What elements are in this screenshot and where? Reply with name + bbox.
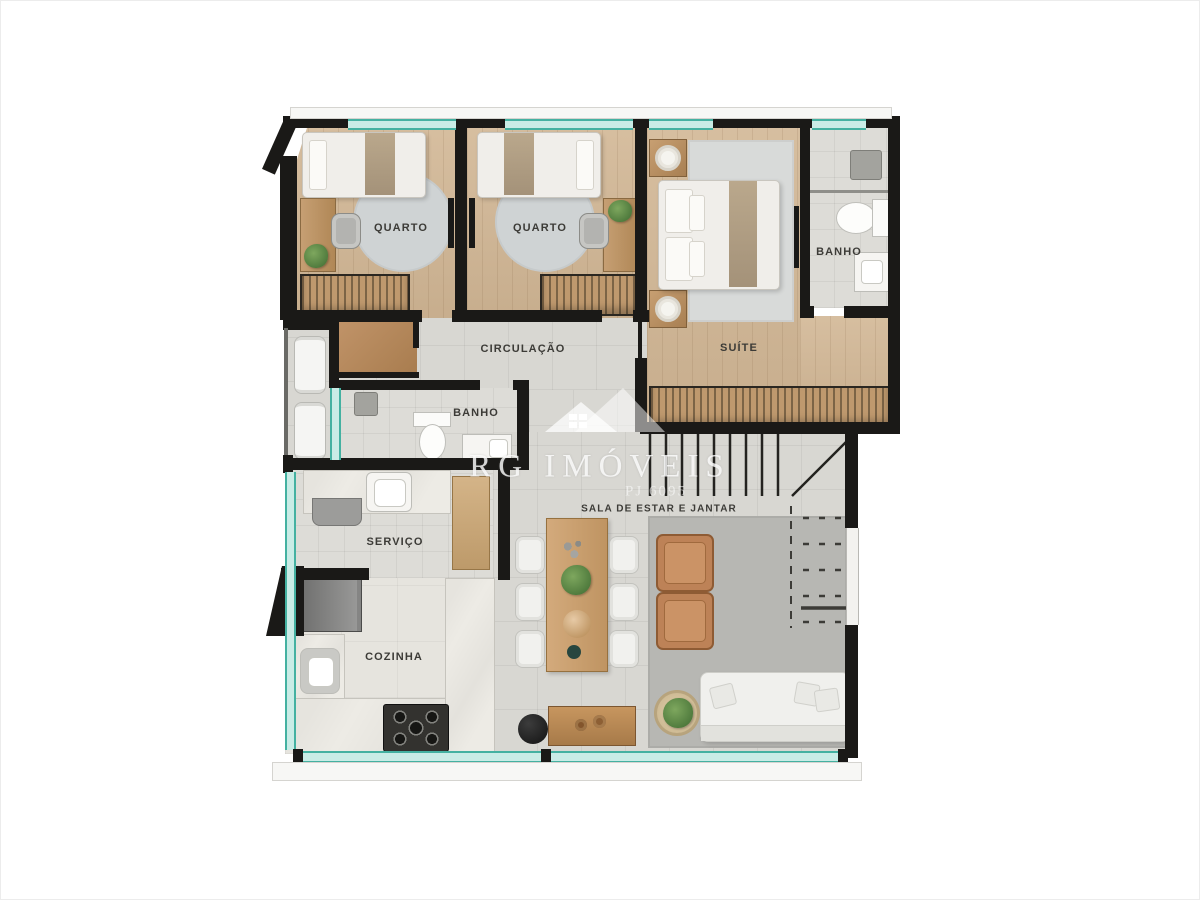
watermark-brand: RG IMÓVEIS — [469, 449, 731, 486]
toilet-tank — [872, 199, 889, 237]
basin — [861, 260, 883, 284]
pillow — [689, 241, 705, 277]
window-opening — [846, 528, 859, 625]
fridge — [298, 576, 362, 632]
dining-chair — [609, 630, 639, 668]
kitchen-sink — [300, 648, 340, 694]
bed-quarto-2 — [477, 132, 601, 198]
watermark-registration: PJ 6095 — [625, 484, 687, 501]
floor-plan-canvas: QUARTO QUARTO BANHO SUÍTE CIRCULAÇÃO BAN… — [0, 0, 1200, 900]
sofa — [700, 672, 850, 742]
tv-quarto-2 — [469, 198, 475, 248]
tv-suite — [794, 206, 799, 268]
wall — [452, 310, 602, 322]
wall — [283, 455, 293, 473]
ac-unit-1 — [294, 336, 326, 394]
nightstand-suite-2 — [649, 290, 687, 328]
counter-kitchen-peninsula — [445, 578, 495, 754]
basin — [308, 657, 334, 687]
wall — [280, 156, 297, 320]
wall — [888, 116, 900, 434]
floor-closet — [339, 322, 417, 376]
shower-head-icon — [354, 392, 378, 416]
dining-chair — [515, 630, 545, 668]
balcony-ledge — [272, 762, 862, 781]
desk-chair — [579, 213, 609, 249]
wall — [635, 126, 647, 322]
servico-door-panel — [452, 476, 490, 570]
window-post — [293, 749, 303, 762]
wall — [332, 380, 480, 390]
pillow — [689, 195, 705, 231]
shower-glass — [810, 190, 888, 193]
cup — [567, 645, 581, 659]
washer — [312, 498, 362, 526]
sofa-pillow — [709, 682, 738, 709]
blanket-stripe — [504, 133, 534, 195]
dining-chair — [515, 583, 545, 621]
room-label-circulacao: CIRCULAÇÃO — [481, 343, 566, 355]
table-decor — [560, 536, 586, 562]
door-leaf — [638, 320, 642, 358]
tv-quarto-1 — [448, 198, 454, 248]
wall — [845, 434, 858, 528]
room-label-banho-suite: BANHO — [816, 246, 862, 258]
window-post — [541, 749, 551, 762]
vase — [593, 715, 606, 728]
room-label-quarto-2: QUARTO — [513, 222, 567, 234]
bed-quarto-1 — [302, 132, 426, 198]
room-label-banho-social: BANHO — [453, 407, 499, 419]
wall — [845, 625, 858, 758]
closet-wall — [413, 322, 419, 348]
room-label-sala: SALA DE ESTAR E JANTAR — [581, 504, 737, 515]
sideboard — [548, 706, 636, 746]
window-glass — [330, 388, 341, 460]
wall — [800, 126, 810, 316]
ledge-parapet — [284, 328, 288, 460]
plant-quarto-2 — [608, 200, 632, 222]
wall — [498, 470, 510, 580]
lamp — [655, 296, 681, 322]
window-glass — [812, 119, 866, 130]
pillow — [576, 140, 594, 190]
house-logo-icon — [545, 382, 665, 438]
window-post — [838, 749, 848, 762]
table-plant — [561, 565, 591, 595]
pouf-plant — [663, 698, 693, 728]
window-glass — [649, 119, 713, 130]
room-label-cozinha: COZINHA — [365, 651, 423, 663]
room-label-servico: SERVIÇO — [366, 536, 423, 548]
desk-chair — [331, 213, 361, 249]
room-label-quarto-1: QUARTO — [374, 222, 428, 234]
closet-wall — [333, 372, 419, 378]
window-glass — [505, 119, 633, 130]
plant-quarto-1 — [304, 244, 328, 268]
laundry-sink — [366, 472, 412, 512]
blanket-stripe — [365, 133, 395, 195]
side-table-black — [518, 714, 548, 744]
blanket-stripe — [729, 181, 757, 287]
vase — [575, 719, 587, 731]
lamp — [655, 145, 681, 171]
closet-wall — [333, 322, 339, 378]
bed-suite — [658, 180, 780, 290]
wall — [640, 422, 900, 434]
toilet-social — [419, 424, 446, 460]
dining-chair — [609, 536, 639, 574]
toilet-suite — [836, 202, 876, 234]
window-glass — [285, 472, 296, 750]
cooktop — [383, 704, 449, 752]
nightstand-suite-1 — [649, 139, 687, 177]
sink-banho-suite — [854, 252, 890, 292]
shower-head-icon — [850, 150, 882, 180]
window-sill — [290, 107, 892, 119]
dining-chair — [515, 536, 545, 574]
pillow — [309, 140, 327, 190]
sofa-back — [701, 725, 849, 741]
wall — [455, 126, 467, 322]
ac-unit-2 — [294, 402, 326, 460]
dining-chair — [609, 583, 639, 621]
wood-bowl — [563, 610, 591, 638]
sofa-pillow — [814, 687, 841, 712]
room-label-suite: SUÍTE — [720, 342, 758, 354]
wall — [800, 306, 814, 318]
wall — [283, 320, 337, 330]
window-glass — [348, 119, 456, 130]
basin — [374, 479, 406, 507]
